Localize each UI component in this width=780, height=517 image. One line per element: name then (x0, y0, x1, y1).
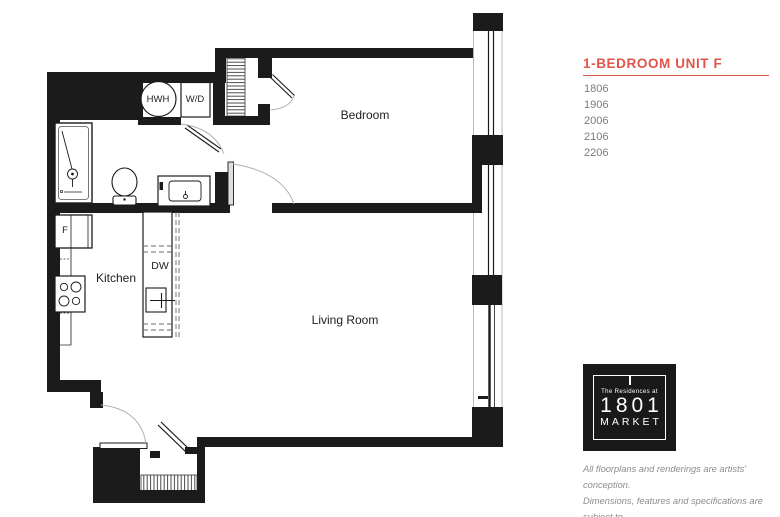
info-panel: 1-BEDROOM UNIT F 1806 1906 2006 2106 220… (583, 0, 780, 517)
vanity-sink-icon (158, 176, 210, 206)
refrigerator-label: F (62, 225, 68, 236)
walls (47, 13, 503, 503)
range-icon (55, 276, 85, 312)
1801-market-logo: The Residences at 1801 MARKET (583, 364, 676, 451)
entry-closet-door (150, 422, 199, 458)
disclaimer-line: All floorplans and renderings are artist… (583, 461, 780, 493)
logo-tick-mark (629, 376, 631, 385)
title-underline (583, 75, 769, 76)
unit-title: 1-BEDROOM UNIT F (583, 56, 722, 71)
bedroom-door (228, 162, 294, 205)
bedroom-closet-door (270, 75, 295, 111)
kitchen-label: Kitchen (96, 271, 136, 285)
entry-door (100, 405, 147, 449)
bedroom-closet-hatch (227, 57, 245, 116)
bathroom-door (181, 124, 224, 154)
unit-number: 1906 (584, 97, 608, 113)
unit-number: 2106 (584, 129, 608, 145)
island-counter (143, 212, 179, 337)
bedroom-label: Bedroom (341, 108, 390, 122)
disclaimer-text: All floorplans and renderings are artist… (583, 461, 780, 517)
logo-number: 1801 (596, 395, 663, 417)
disclaimer-line: Dimensions, features and specifications … (583, 493, 780, 517)
unit-number: 1806 (584, 81, 608, 97)
shower-icon (55, 123, 92, 203)
unit-number-list: 1806 1906 2006 2106 2206 (584, 81, 608, 161)
window-wall (474, 14, 503, 447)
toilet-icon (112, 168, 137, 205)
logo-frame: The Residences at 1801 MARKET (593, 375, 666, 440)
living-room-label: Living Room (312, 313, 379, 327)
hot-water-heater-label: HWH (147, 94, 170, 105)
dishwasher-label: DW (151, 260, 169, 272)
refrigerator-icon (55, 215, 92, 248)
logo-name: MARKET (597, 417, 662, 428)
unit-number: 2206 (584, 145, 608, 161)
washer-dryer-label: W/D (186, 94, 204, 105)
floorplan-page: Bedroom Living Room Kitchen DW HWH W/D F… (0, 0, 780, 517)
entry-closet-hatch (141, 475, 197, 492)
unit-number: 2006 (584, 113, 608, 129)
